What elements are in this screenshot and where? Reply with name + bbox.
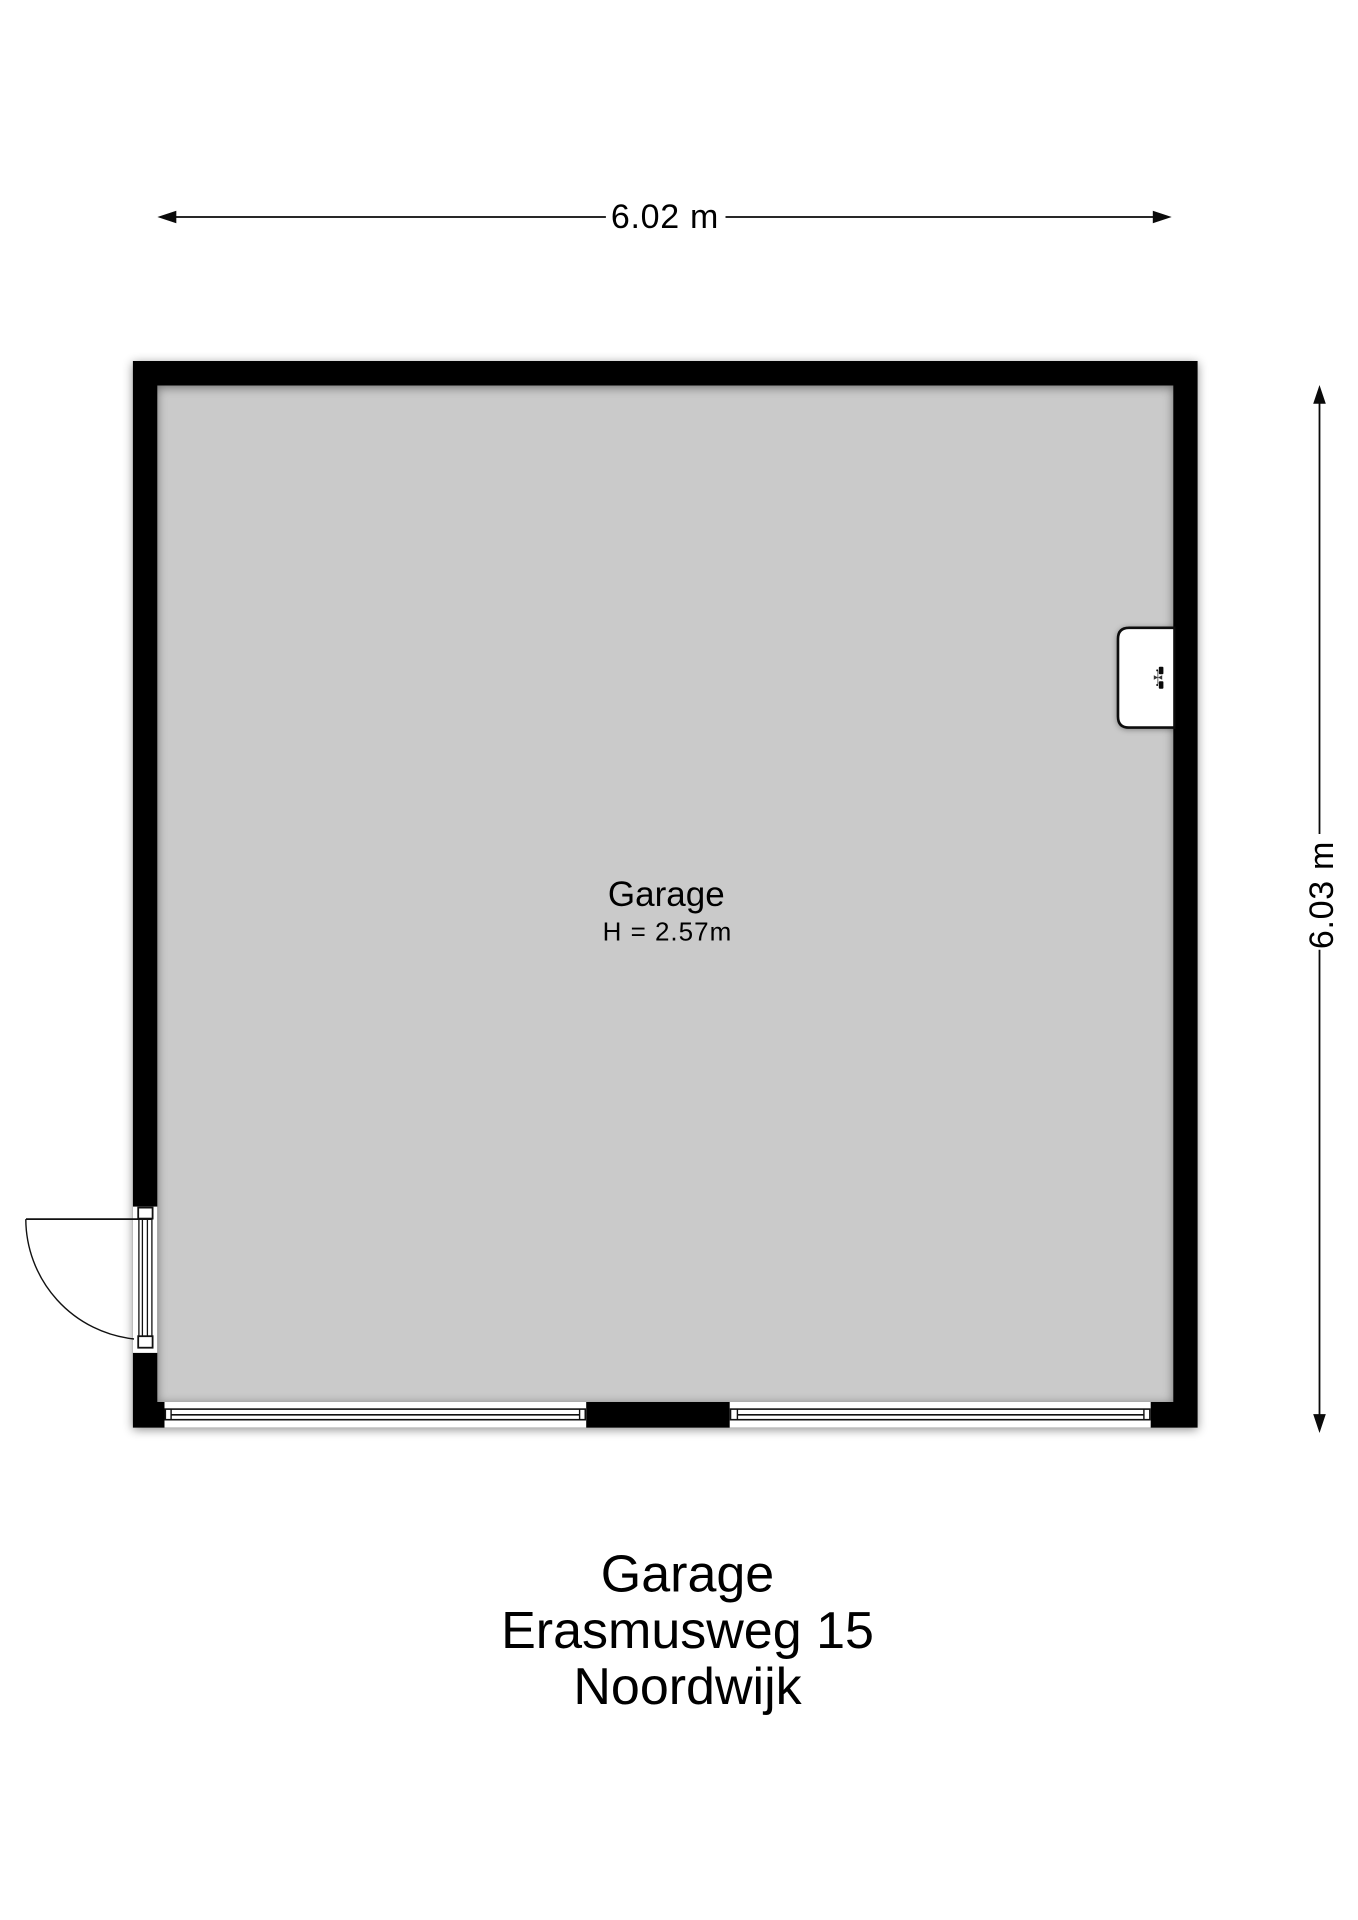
svg-text:Noordwijk: Noordwijk [573,1658,802,1716]
svg-text:Erasmusweg 15: Erasmusweg 15 [501,1602,874,1660]
svg-text:6.02 m: 6.02 m [611,198,719,236]
svg-text:Garage: Garage [608,875,725,914]
svg-text:6.03 m: 6.03 m [1303,841,1341,949]
svg-text:H = 2.57m: H = 2.57m [603,917,733,947]
svg-text:Garage: Garage [601,1546,774,1604]
